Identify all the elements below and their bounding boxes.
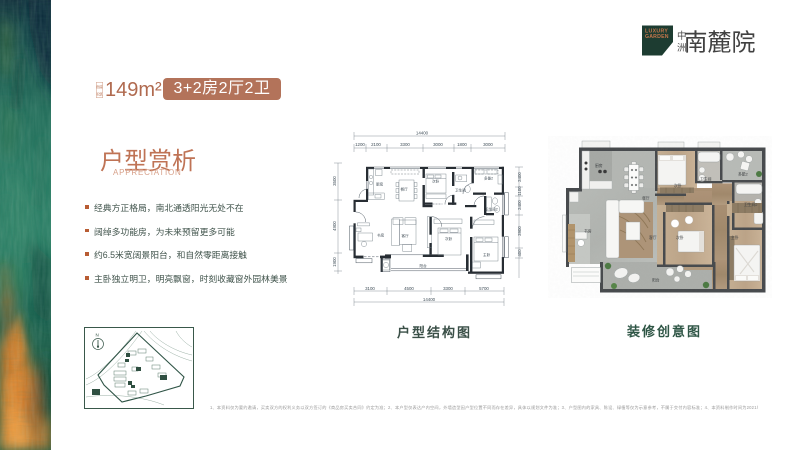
svg-text:主卧: 主卧 — [731, 235, 739, 240]
svg-text:3000: 3000 — [433, 142, 443, 147]
svg-text:卫生间: 卫生间 — [700, 177, 712, 182]
svg-text:厨房: 厨房 — [595, 163, 603, 168]
svg-text:1200: 1200 — [355, 142, 365, 147]
svg-text:厨房: 厨房 — [376, 182, 384, 187]
svg-text:面: 面 — [96, 85, 99, 89]
svg-text:1800: 1800 — [457, 142, 467, 147]
svg-text:卫生间2: 卫生间2 — [744, 202, 758, 207]
svg-text:阳台: 阳台 — [652, 278, 660, 283]
svg-text:GARDEN: GARDEN — [645, 34, 669, 40]
svg-text:多能2: 多能2 — [484, 176, 493, 181]
svg-text:3900: 3900 — [517, 226, 522, 236]
svg-text:阳台: 阳台 — [420, 263, 428, 268]
svg-text:5700: 5700 — [479, 286, 489, 291]
svg-text:2400: 2400 — [517, 200, 522, 210]
svg-text:N: N — [96, 333, 99, 338]
svg-text:4500: 4500 — [404, 286, 414, 291]
svg-text:次卧: 次卧 — [432, 179, 440, 184]
svg-text:14400: 14400 — [423, 297, 436, 302]
svg-text:筑: 筑 — [99, 91, 103, 96]
svg-text:400: 400 — [517, 249, 522, 257]
svg-text:次卧: 次卧 — [674, 183, 682, 188]
svg-text:3300: 3300 — [400, 142, 410, 147]
svg-text:14400: 14400 — [416, 131, 429, 136]
svg-text:客厅: 客厅 — [649, 235, 657, 240]
svg-text:书房: 书房 — [584, 229, 592, 234]
svg-text:餐厅: 餐厅 — [642, 196, 650, 201]
svg-text:书房: 书房 — [377, 233, 385, 238]
svg-text:主卧: 主卧 — [483, 252, 491, 257]
svg-text:次卧: 次卧 — [445, 236, 453, 241]
svg-text:餐厅: 餐厅 — [401, 187, 409, 192]
svg-text:次卧: 次卧 — [676, 235, 684, 240]
svg-text:4900: 4900 — [332, 221, 337, 231]
svg-text:客厅: 客厅 — [402, 233, 410, 238]
svg-text:卫生间: 卫生间 — [455, 187, 466, 192]
svg-text:南麓院: 南麓院 — [684, 30, 756, 57]
svg-text:1100: 1100 — [517, 186, 522, 196]
svg-text:3000: 3000 — [483, 142, 493, 147]
svg-text:3300: 3300 — [443, 286, 453, 291]
svg-text:3500: 3500 — [332, 176, 337, 186]
svg-text:建: 建 — [99, 84, 103, 89]
svg-text:3100: 3100 — [365, 286, 375, 291]
svg-text:2100: 2100 — [371, 142, 381, 147]
svg-text:卫生间2: 卫生间2 — [485, 207, 498, 212]
svg-text:1900: 1900 — [332, 257, 337, 267]
svg-text:2400: 2400 — [517, 172, 522, 182]
svg-text:多能2: 多能2 — [738, 172, 748, 177]
